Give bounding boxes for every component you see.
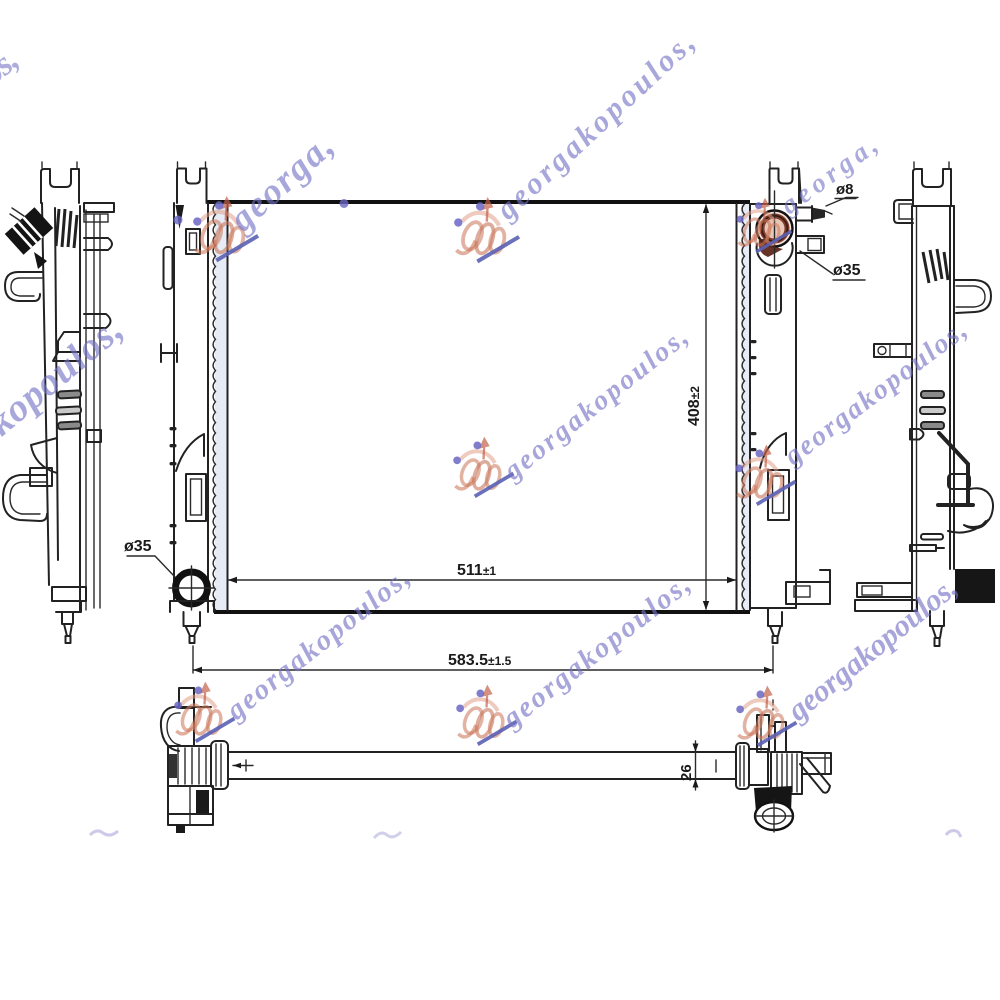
svg-text:583.5±1.5: 583.5±1.5 bbox=[448, 652, 512, 669]
svg-text:ø35: ø35 bbox=[833, 262, 861, 279]
svg-text:408±2: 408±2 bbox=[686, 386, 703, 426]
svg-text:26: 26 bbox=[678, 764, 695, 781]
svg-text:511±1: 511±1 bbox=[457, 562, 496, 579]
svg-text:ø35: ø35 bbox=[124, 538, 152, 555]
